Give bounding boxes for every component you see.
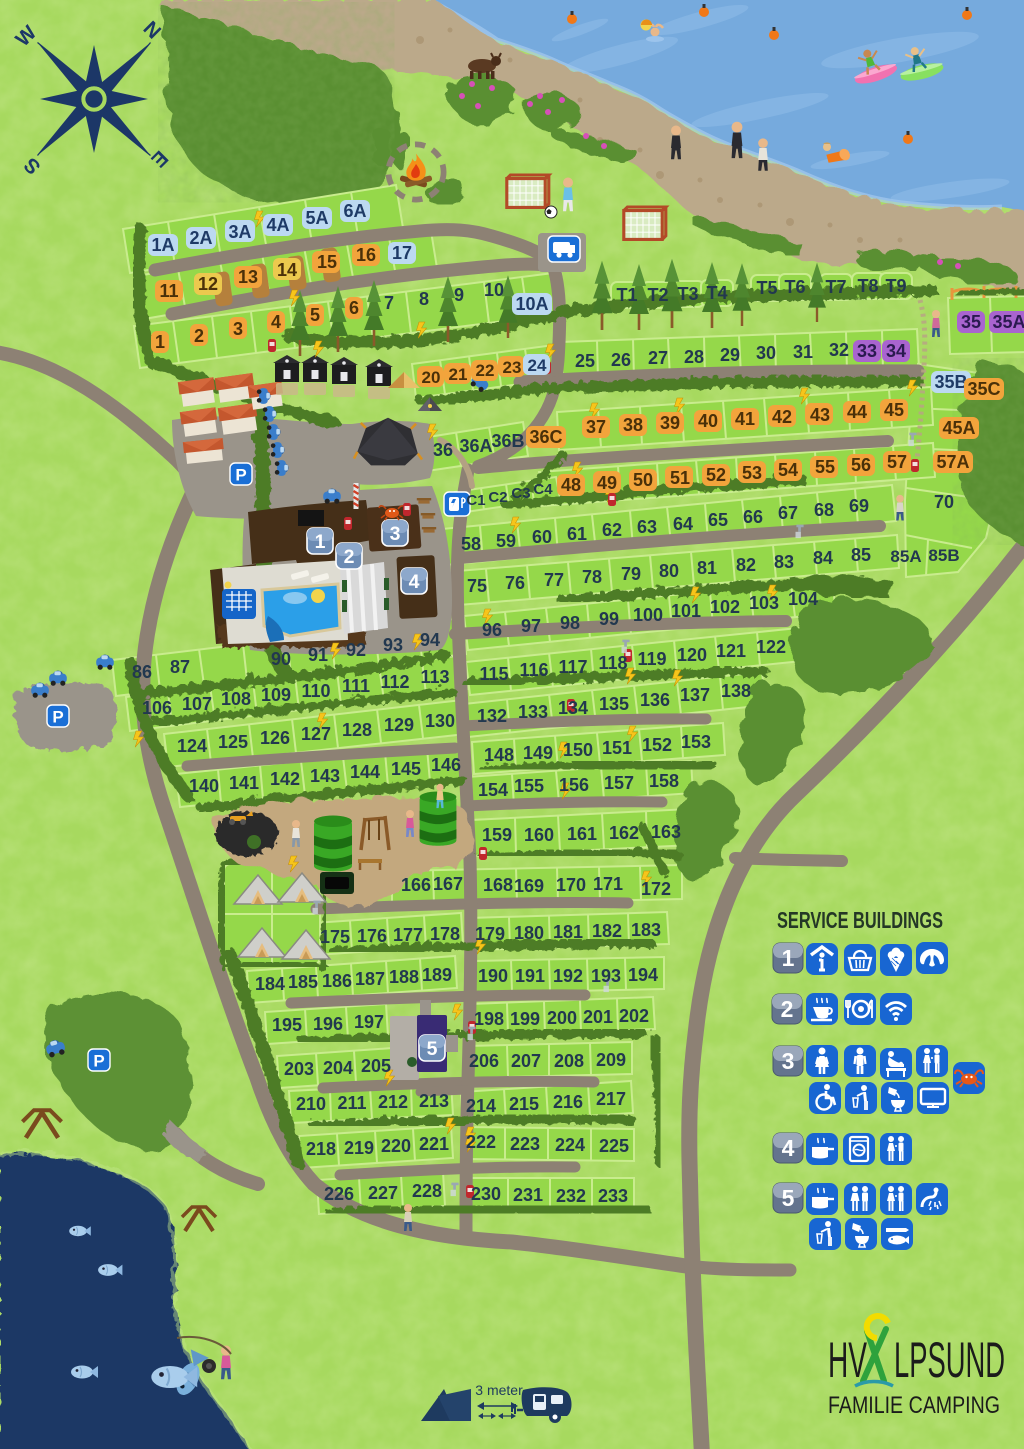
svg-text:230: 230 bbox=[471, 1184, 501, 1204]
svg-text:141: 141 bbox=[229, 773, 259, 793]
svg-text:31: 31 bbox=[793, 342, 813, 362]
svg-text:121: 121 bbox=[716, 641, 746, 661]
svg-text:216: 216 bbox=[553, 1092, 583, 1112]
svg-text:167: 167 bbox=[433, 874, 463, 894]
svg-text:168: 168 bbox=[483, 875, 513, 895]
svg-text:232: 232 bbox=[556, 1186, 586, 1206]
svg-text:187: 187 bbox=[355, 969, 385, 989]
svg-text:153: 153 bbox=[681, 732, 711, 752]
svg-text:37: 37 bbox=[586, 417, 606, 437]
svg-text:92: 92 bbox=[346, 640, 366, 660]
svg-text:40: 40 bbox=[698, 411, 718, 431]
svg-text:81: 81 bbox=[697, 558, 717, 578]
svg-text:44: 44 bbox=[847, 402, 867, 422]
svg-text:35A: 35A bbox=[992, 312, 1024, 332]
svg-text:116: 116 bbox=[519, 660, 548, 680]
svg-text:218: 218 bbox=[306, 1139, 336, 1159]
svg-text:172: 172 bbox=[641, 879, 671, 899]
svg-text:2A: 2A bbox=[189, 228, 212, 248]
svg-text:60: 60 bbox=[532, 527, 552, 547]
svg-text:208: 208 bbox=[554, 1051, 584, 1071]
svg-text:163: 163 bbox=[651, 822, 681, 842]
svg-text:9: 9 bbox=[454, 285, 464, 305]
svg-text:182: 182 bbox=[592, 921, 622, 941]
svg-text:69: 69 bbox=[849, 496, 869, 516]
svg-text:LPSUND: LPSUND bbox=[894, 1332, 1005, 1388]
svg-text:6: 6 bbox=[349, 298, 359, 318]
svg-text:36A: 36A bbox=[459, 436, 492, 456]
svg-text:16: 16 bbox=[356, 245, 376, 265]
svg-text:82: 82 bbox=[736, 555, 756, 575]
svg-text:65: 65 bbox=[708, 510, 728, 530]
svg-text:115: 115 bbox=[479, 664, 508, 684]
svg-text:203: 203 bbox=[284, 1059, 314, 1079]
svg-text:228: 228 bbox=[412, 1181, 442, 1201]
svg-text:169: 169 bbox=[514, 876, 544, 896]
svg-text:140: 140 bbox=[189, 776, 219, 796]
svg-text:213: 213 bbox=[419, 1091, 449, 1111]
svg-text:12: 12 bbox=[198, 274, 218, 294]
svg-text:1: 1 bbox=[315, 531, 326, 553]
svg-text:57A: 57A bbox=[936, 452, 969, 472]
svg-text:108: 108 bbox=[221, 689, 251, 709]
svg-text:162: 162 bbox=[609, 823, 639, 843]
svg-text:61: 61 bbox=[567, 524, 587, 544]
svg-text:202: 202 bbox=[619, 1006, 649, 1026]
svg-text:T5: T5 bbox=[756, 278, 777, 298]
svg-text:215: 215 bbox=[509, 1094, 539, 1114]
svg-text:2: 2 bbox=[194, 326, 204, 346]
svg-text:5: 5 bbox=[427, 1038, 438, 1060]
svg-text:26: 26 bbox=[611, 350, 631, 370]
svg-text:200: 200 bbox=[547, 1008, 577, 1028]
svg-text:154: 154 bbox=[478, 780, 508, 800]
svg-text:183: 183 bbox=[631, 920, 661, 940]
svg-text:14: 14 bbox=[277, 260, 297, 280]
svg-text:192: 192 bbox=[553, 966, 583, 986]
svg-text:96: 96 bbox=[482, 620, 502, 640]
svg-text:21: 21 bbox=[449, 365, 468, 384]
svg-text:132: 132 bbox=[477, 706, 507, 726]
svg-text:32: 32 bbox=[829, 340, 849, 360]
svg-text:117: 117 bbox=[558, 657, 587, 677]
svg-text:T1: T1 bbox=[616, 285, 637, 305]
svg-text:122: 122 bbox=[756, 637, 786, 657]
svg-text:190: 190 bbox=[478, 966, 508, 986]
svg-text:25: 25 bbox=[575, 351, 595, 371]
svg-text:186: 186 bbox=[322, 971, 352, 991]
svg-text:7: 7 bbox=[384, 293, 394, 313]
svg-text:1: 1 bbox=[155, 332, 165, 352]
svg-text:27: 27 bbox=[648, 348, 668, 368]
svg-text:113: 113 bbox=[420, 667, 449, 687]
svg-text:4A: 4A bbox=[266, 215, 289, 235]
svg-text:T6: T6 bbox=[784, 277, 805, 297]
svg-text:179: 179 bbox=[475, 924, 505, 944]
svg-text:63: 63 bbox=[637, 517, 657, 537]
svg-text:111: 111 bbox=[342, 676, 370, 696]
svg-text:85B: 85B bbox=[928, 546, 959, 565]
svg-text:17: 17 bbox=[392, 243, 412, 263]
svg-text:3 meter: 3 meter bbox=[475, 1382, 523, 1398]
svg-text:185: 185 bbox=[288, 972, 318, 992]
svg-text:217: 217 bbox=[596, 1089, 626, 1109]
svg-text:T4: T4 bbox=[706, 283, 727, 303]
svg-text:233: 233 bbox=[598, 1186, 628, 1206]
svg-text:181: 181 bbox=[553, 922, 583, 942]
svg-text:199: 199 bbox=[510, 1009, 540, 1029]
svg-text:22: 22 bbox=[476, 361, 495, 380]
svg-text:T8: T8 bbox=[857, 276, 878, 296]
svg-text:176: 176 bbox=[357, 926, 387, 946]
svg-text:156: 156 bbox=[559, 775, 589, 795]
svg-text:15: 15 bbox=[317, 252, 337, 272]
svg-text:194: 194 bbox=[628, 965, 658, 985]
svg-text:184: 184 bbox=[255, 974, 285, 994]
svg-text:135: 135 bbox=[599, 694, 629, 714]
svg-text:56: 56 bbox=[851, 455, 871, 475]
svg-text:151: 151 bbox=[602, 738, 632, 758]
svg-text:41: 41 bbox=[735, 409, 755, 429]
svg-text:159: 159 bbox=[482, 825, 512, 845]
svg-text:90: 90 bbox=[271, 649, 291, 669]
svg-text:C3: C3 bbox=[511, 485, 530, 502]
svg-text:3: 3 bbox=[390, 523, 401, 545]
svg-text:4: 4 bbox=[409, 571, 420, 593]
svg-text:138: 138 bbox=[721, 681, 751, 701]
svg-text:222: 222 bbox=[466, 1132, 496, 1152]
svg-text:FAMILIE CAMPING: FAMILIE CAMPING bbox=[828, 1392, 1000, 1419]
svg-text:150: 150 bbox=[563, 740, 593, 760]
svg-text:39: 39 bbox=[660, 413, 680, 433]
svg-text:94: 94 bbox=[420, 630, 440, 650]
svg-text:142: 142 bbox=[270, 769, 300, 789]
svg-text:177: 177 bbox=[393, 925, 423, 945]
svg-text:171: 171 bbox=[593, 874, 623, 894]
svg-text:45: 45 bbox=[884, 400, 904, 420]
svg-text:35: 35 bbox=[961, 312, 981, 332]
svg-text:130: 130 bbox=[425, 711, 455, 731]
svg-text:157: 157 bbox=[604, 773, 634, 793]
svg-text:160: 160 bbox=[524, 825, 554, 845]
svg-text:101: 101 bbox=[671, 601, 701, 621]
svg-text:91: 91 bbox=[308, 645, 328, 665]
svg-text:99: 99 bbox=[599, 609, 619, 629]
svg-text:106: 106 bbox=[142, 698, 172, 718]
svg-text:166: 166 bbox=[401, 875, 431, 895]
svg-text:118: 118 bbox=[598, 653, 627, 673]
svg-text:T2: T2 bbox=[647, 285, 668, 305]
svg-text:127: 127 bbox=[301, 724, 331, 744]
svg-text:64: 64 bbox=[673, 514, 693, 534]
svg-text:28: 28 bbox=[684, 347, 704, 367]
svg-text:144: 144 bbox=[350, 762, 380, 782]
svg-text:207: 207 bbox=[511, 1051, 541, 1071]
svg-text:24: 24 bbox=[528, 356, 547, 375]
svg-text:134: 134 bbox=[558, 698, 588, 718]
svg-text:225: 225 bbox=[599, 1136, 629, 1156]
svg-text:226: 226 bbox=[324, 1184, 354, 1204]
svg-text:2: 2 bbox=[344, 546, 355, 568]
svg-text:1: 1 bbox=[782, 945, 795, 971]
svg-text:79: 79 bbox=[621, 564, 641, 584]
svg-text:20: 20 bbox=[422, 368, 441, 387]
svg-text:220: 220 bbox=[381, 1136, 411, 1156]
svg-text:51: 51 bbox=[670, 468, 690, 488]
svg-text:175: 175 bbox=[320, 927, 350, 947]
svg-text:124: 124 bbox=[177, 736, 207, 756]
svg-text:136: 136 bbox=[640, 690, 670, 710]
svg-text:36: 36 bbox=[433, 440, 453, 460]
svg-text:198: 198 bbox=[474, 1009, 504, 1029]
svg-text:SERVICE BUILDINGS: SERVICE BUILDINGS bbox=[777, 907, 943, 933]
svg-text:11: 11 bbox=[159, 281, 178, 301]
svg-text:221: 221 bbox=[419, 1134, 449, 1154]
svg-text:10A: 10A bbox=[515, 294, 548, 314]
svg-text:54: 54 bbox=[778, 460, 798, 480]
svg-text:205: 205 bbox=[361, 1056, 391, 1076]
svg-text:191: 191 bbox=[515, 966, 545, 986]
svg-text:5A: 5A bbox=[305, 208, 328, 228]
svg-text:23: 23 bbox=[503, 358, 522, 377]
svg-text:143: 143 bbox=[310, 766, 340, 786]
svg-text:102: 102 bbox=[710, 597, 740, 617]
svg-text:206: 206 bbox=[469, 1051, 499, 1071]
svg-text:97: 97 bbox=[521, 616, 541, 636]
svg-text:48: 48 bbox=[561, 475, 581, 495]
svg-text:104: 104 bbox=[788, 589, 818, 609]
svg-text:75: 75 bbox=[467, 576, 487, 596]
svg-text:119: 119 bbox=[637, 649, 666, 669]
svg-text:128: 128 bbox=[342, 720, 372, 740]
svg-text:209: 209 bbox=[596, 1050, 626, 1070]
svg-text:59: 59 bbox=[496, 531, 516, 551]
svg-text:50: 50 bbox=[633, 470, 653, 490]
svg-text:85: 85 bbox=[851, 545, 871, 565]
svg-text:148: 148 bbox=[484, 745, 514, 765]
svg-text:43: 43 bbox=[810, 405, 830, 425]
svg-text:158: 158 bbox=[649, 771, 679, 791]
svg-text:196: 196 bbox=[313, 1014, 343, 1034]
svg-text:1A: 1A bbox=[151, 235, 174, 255]
svg-text:149: 149 bbox=[523, 743, 553, 763]
svg-text:189: 189 bbox=[422, 965, 452, 985]
svg-text:109: 109 bbox=[261, 685, 291, 705]
svg-text:3: 3 bbox=[782, 1048, 795, 1074]
svg-text:120: 120 bbox=[677, 645, 707, 665]
svg-text:100: 100 bbox=[633, 605, 663, 625]
svg-text:197: 197 bbox=[354, 1012, 384, 1032]
svg-text:33: 33 bbox=[857, 341, 877, 361]
svg-text:5: 5 bbox=[782, 1185, 795, 1211]
svg-text:76: 76 bbox=[505, 573, 525, 593]
svg-text:110: 110 bbox=[301, 681, 330, 701]
svg-text:195: 195 bbox=[272, 1015, 302, 1035]
svg-text:C1: C1 bbox=[466, 492, 485, 509]
svg-text:57: 57 bbox=[887, 452, 907, 472]
svg-text:36B: 36B bbox=[491, 431, 524, 451]
svg-text:10: 10 bbox=[484, 280, 504, 300]
svg-text:13: 13 bbox=[238, 267, 258, 287]
svg-text:30: 30 bbox=[756, 343, 776, 363]
svg-text:T3: T3 bbox=[677, 284, 698, 304]
svg-text:80: 80 bbox=[659, 561, 679, 581]
svg-text:201: 201 bbox=[583, 1007, 613, 1027]
svg-text:152: 152 bbox=[642, 735, 672, 755]
svg-text:137: 137 bbox=[680, 685, 710, 705]
svg-text:133: 133 bbox=[518, 702, 548, 722]
svg-text:C4: C4 bbox=[533, 481, 553, 498]
svg-text:85A: 85A bbox=[890, 547, 921, 566]
svg-text:4: 4 bbox=[782, 1135, 795, 1161]
svg-text:87: 87 bbox=[170, 657, 190, 677]
svg-text:38: 38 bbox=[623, 415, 643, 435]
svg-text:5: 5 bbox=[310, 305, 320, 325]
svg-text:45A: 45A bbox=[942, 418, 975, 438]
svg-text:55: 55 bbox=[815, 457, 835, 477]
svg-text:66: 66 bbox=[743, 507, 763, 527]
svg-text:70: 70 bbox=[934, 492, 954, 512]
svg-text:219: 219 bbox=[344, 1138, 374, 1158]
svg-text:112: 112 bbox=[380, 672, 409, 692]
svg-text:170: 170 bbox=[556, 875, 586, 895]
svg-text:2: 2 bbox=[781, 996, 794, 1022]
svg-text:193: 193 bbox=[591, 966, 621, 986]
svg-text:231: 231 bbox=[513, 1185, 543, 1205]
svg-text:68: 68 bbox=[814, 500, 834, 520]
svg-text:161: 161 bbox=[567, 824, 597, 844]
svg-text:126: 126 bbox=[260, 728, 290, 748]
svg-text:145: 145 bbox=[391, 759, 421, 779]
svg-text:146: 146 bbox=[431, 755, 461, 775]
svg-text:84: 84 bbox=[813, 548, 833, 568]
svg-text:34: 34 bbox=[886, 341, 906, 361]
svg-text:77: 77 bbox=[544, 570, 564, 590]
svg-text:204: 204 bbox=[323, 1058, 353, 1078]
svg-text:211: 211 bbox=[337, 1093, 366, 1113]
svg-text:53: 53 bbox=[742, 463, 762, 483]
svg-text:178: 178 bbox=[430, 924, 460, 944]
svg-text:4: 4 bbox=[271, 312, 281, 332]
svg-text:C2: C2 bbox=[488, 489, 507, 506]
svg-text:212: 212 bbox=[378, 1092, 408, 1112]
svg-text:62: 62 bbox=[602, 520, 622, 540]
svg-text:98: 98 bbox=[560, 613, 580, 633]
svg-text:210: 210 bbox=[296, 1094, 326, 1114]
svg-text:155: 155 bbox=[514, 776, 544, 796]
svg-text:188: 188 bbox=[389, 967, 419, 987]
svg-text:224: 224 bbox=[555, 1135, 585, 1155]
svg-text:83: 83 bbox=[774, 552, 794, 572]
svg-text:35C: 35C bbox=[967, 379, 1000, 399]
svg-text:35B: 35B bbox=[934, 372, 967, 392]
svg-text:52: 52 bbox=[706, 465, 726, 485]
svg-text:129: 129 bbox=[384, 715, 414, 735]
svg-text:214: 214 bbox=[466, 1096, 496, 1116]
svg-text:6A: 6A bbox=[343, 201, 366, 221]
svg-text:67: 67 bbox=[778, 503, 798, 523]
svg-text:36C: 36C bbox=[529, 427, 562, 447]
svg-text:103: 103 bbox=[749, 593, 779, 613]
svg-text:223: 223 bbox=[510, 1134, 540, 1154]
svg-text:93: 93 bbox=[383, 635, 403, 655]
svg-text:3: 3 bbox=[233, 319, 243, 339]
svg-text:42: 42 bbox=[772, 407, 792, 427]
svg-text:227: 227 bbox=[368, 1183, 398, 1203]
svg-text:125: 125 bbox=[218, 732, 248, 752]
svg-text:49: 49 bbox=[597, 473, 617, 493]
svg-text:T7: T7 bbox=[825, 277, 846, 297]
svg-text:29: 29 bbox=[720, 345, 740, 365]
svg-text:180: 180 bbox=[514, 923, 544, 943]
svg-text:T9: T9 bbox=[885, 276, 906, 296]
svg-text:107: 107 bbox=[182, 694, 212, 714]
svg-text:78: 78 bbox=[582, 567, 602, 587]
svg-text:3A: 3A bbox=[228, 222, 251, 242]
svg-text:86: 86 bbox=[132, 662, 152, 682]
svg-text:58: 58 bbox=[461, 534, 481, 554]
svg-text:8: 8 bbox=[419, 289, 429, 309]
